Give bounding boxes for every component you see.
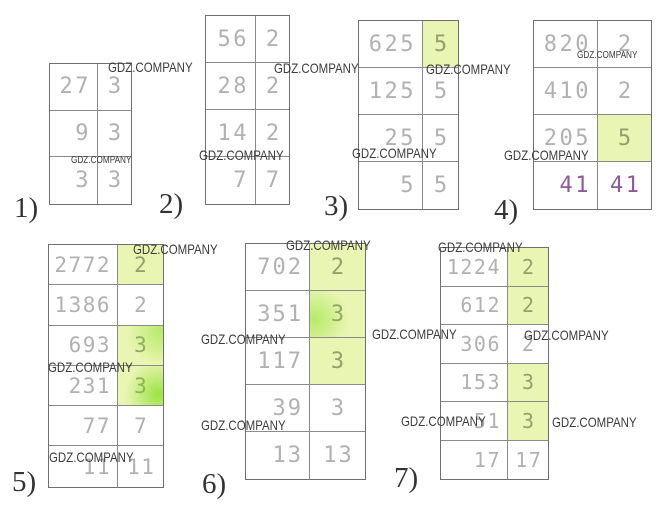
gdz-company-watermark: GDZ.COMPANY — [48, 360, 133, 374]
cell-dividend: 56 — [206, 16, 256, 63]
cell-quotient: 3 — [508, 402, 548, 441]
table-label-2: 2) — [159, 190, 183, 219]
division-table-4: 8202410220554141 — [533, 20, 652, 210]
cell-quotient: 3 — [310, 338, 365, 385]
cell-dividend: 612 — [441, 287, 508, 326]
cell-dividend: 5 — [359, 162, 423, 209]
gdz-company-watermark: GDZ.COMPANY — [504, 148, 589, 162]
division-table-3: 6255125525555 — [358, 20, 459, 210]
cell-quotient: 2 — [118, 285, 163, 325]
cell-quotient: 5 — [598, 115, 651, 162]
gdz-company-watermark: GDZ.COMPANY — [286, 238, 371, 252]
division-table-7: 122426122306215335131717 — [440, 247, 549, 480]
cell-quotient: 7 — [256, 157, 289, 204]
cell-dividend: 27 — [50, 64, 98, 111]
cell-dividend: 125 — [359, 68, 423, 115]
gdz-company-watermark: GDZ.COMPANY — [274, 61, 359, 75]
cell-dividend: 153 — [441, 364, 508, 403]
cell-quotient: 3 — [98, 111, 131, 158]
cell-quotient: 2 — [508, 287, 548, 326]
cell-quotient: 13 — [310, 432, 365, 479]
gdz-company-watermark: GDZ.COMPANY — [524, 328, 609, 342]
table-label-1: 1) — [14, 194, 38, 223]
cell-dividend: 410 — [534, 68, 598, 115]
cell-quotient: 2 — [598, 68, 651, 115]
cell-dividend: 77 — [49, 406, 118, 446]
gdz-company-watermark: GDZ.COMPANY — [352, 146, 437, 160]
cell-dividend: 41 — [534, 162, 598, 209]
table-label-4: 4) — [494, 196, 518, 225]
gdz-company-watermark: GDZ.COMPANY — [133, 242, 218, 256]
gdz-company-watermark: GDZ.COMPANY — [401, 414, 486, 428]
gdz-company-watermark: GDZ.COMPANY — [71, 156, 131, 166]
cell-quotient: 7 — [118, 406, 163, 446]
division-table-1: 2739333 — [49, 63, 132, 205]
cell-quotient: 2 — [256, 16, 289, 63]
gdz-company-watermark: GDZ.COMPANY — [577, 51, 637, 61]
cell-quotient: 3 — [310, 385, 365, 432]
gdz-company-watermark: GDZ.COMPANY — [426, 62, 511, 76]
cell-quotient: 5 — [423, 162, 458, 209]
division-table-6: 7022351311733931313 — [245, 243, 366, 480]
cell-quotient: 41 — [598, 162, 651, 209]
cell-dividend: 625 — [359, 21, 423, 68]
table-label-6: 6) — [202, 470, 226, 499]
cell-quotient: 3 — [508, 364, 548, 403]
cell-quotient: 3 — [310, 291, 365, 338]
cell-quotient: 17 — [508, 441, 548, 480]
cell-dividend: 13 — [246, 432, 310, 479]
cell-dividend: 1386 — [49, 285, 118, 325]
table-label-5: 5) — [12, 468, 36, 497]
gdz-company-watermark: GDZ.COMPANY — [372, 327, 457, 341]
cell-dividend: 2772 — [49, 245, 118, 285]
gdz-company-watermark: GDZ.COMPANY — [552, 415, 637, 429]
gdz-company-watermark: GDZ.COMPANY — [108, 60, 193, 74]
gdz-company-watermark: GDZ.COMPANY — [49, 450, 134, 464]
gdz-company-watermark: GDZ.COMPANY — [438, 240, 523, 254]
cell-dividend: 9 — [50, 111, 98, 158]
gdz-company-watermark: GDZ.COMPANY — [199, 148, 284, 162]
worksheet-page: 2739333 56228214277 6255125525555 820241… — [0, 0, 661, 505]
table-label-3: 3) — [324, 192, 348, 221]
gdz-company-watermark: GDZ.COMPANY — [201, 418, 286, 432]
division-table-2: 56228214277 — [205, 15, 290, 205]
gdz-company-watermark: GDZ.COMPANY — [201, 332, 286, 346]
cell-dividend: 17 — [441, 441, 508, 480]
cell-dividend: 28 — [206, 63, 256, 110]
table-label-7: 7) — [394, 464, 418, 493]
cell-dividend: 7 — [206, 157, 256, 204]
